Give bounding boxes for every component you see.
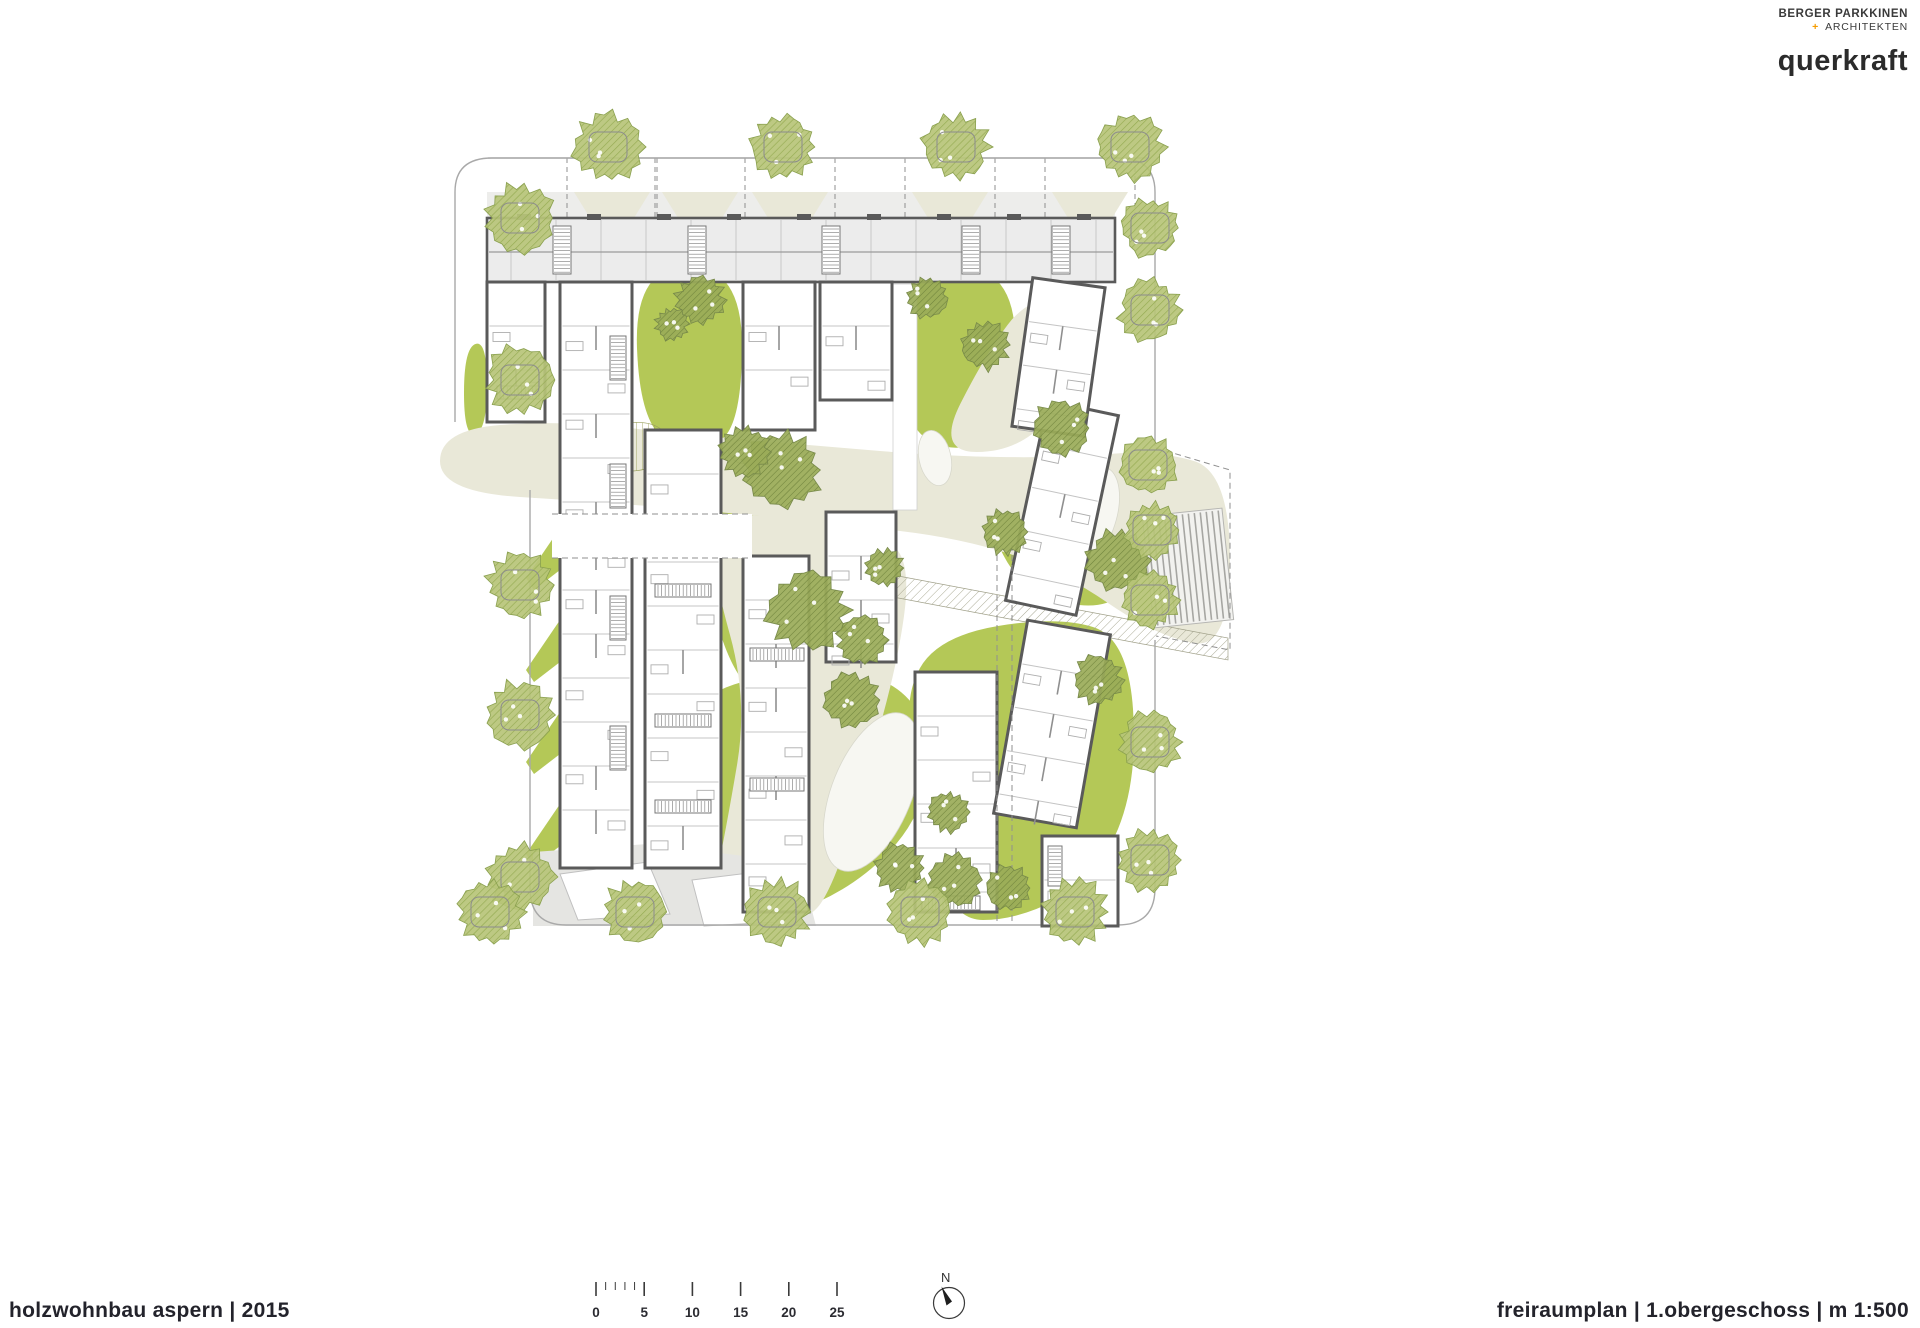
- project-title: holzwohnbau aspern | 2015: [9, 1299, 290, 1323]
- sheet-title: freiraumplan | 1.obergeschoss | m 1:500: [1497, 1299, 1909, 1323]
- north-arrow: N: [934, 1270, 965, 1319]
- firm-querkraft: querkraft: [1778, 46, 1908, 76]
- scale-bar: 0510152025: [592, 1282, 845, 1320]
- svg-text:15: 15: [733, 1305, 749, 1320]
- architects-logo-block: BERGER PARKKINEN +ARCHITEKTEN querkraft: [1778, 8, 1908, 76]
- firm-architekten: ARCHITEKTEN: [1825, 21, 1908, 33]
- svg-text:N: N: [941, 1270, 950, 1285]
- svg-text:0: 0: [592, 1305, 600, 1320]
- plus-icon: +: [1812, 21, 1819, 33]
- firm-architekten-line: +ARCHITEKTEN: [1778, 21, 1908, 33]
- firm-berger-parkkinen: BERGER PARKKINEN: [1778, 8, 1908, 21]
- svg-text:5: 5: [640, 1305, 648, 1320]
- svg-text:25: 25: [829, 1305, 845, 1320]
- svg-text:20: 20: [781, 1305, 796, 1320]
- site-plan: 0510152025N: [0, 0, 1920, 1328]
- svg-text:10: 10: [685, 1305, 700, 1320]
